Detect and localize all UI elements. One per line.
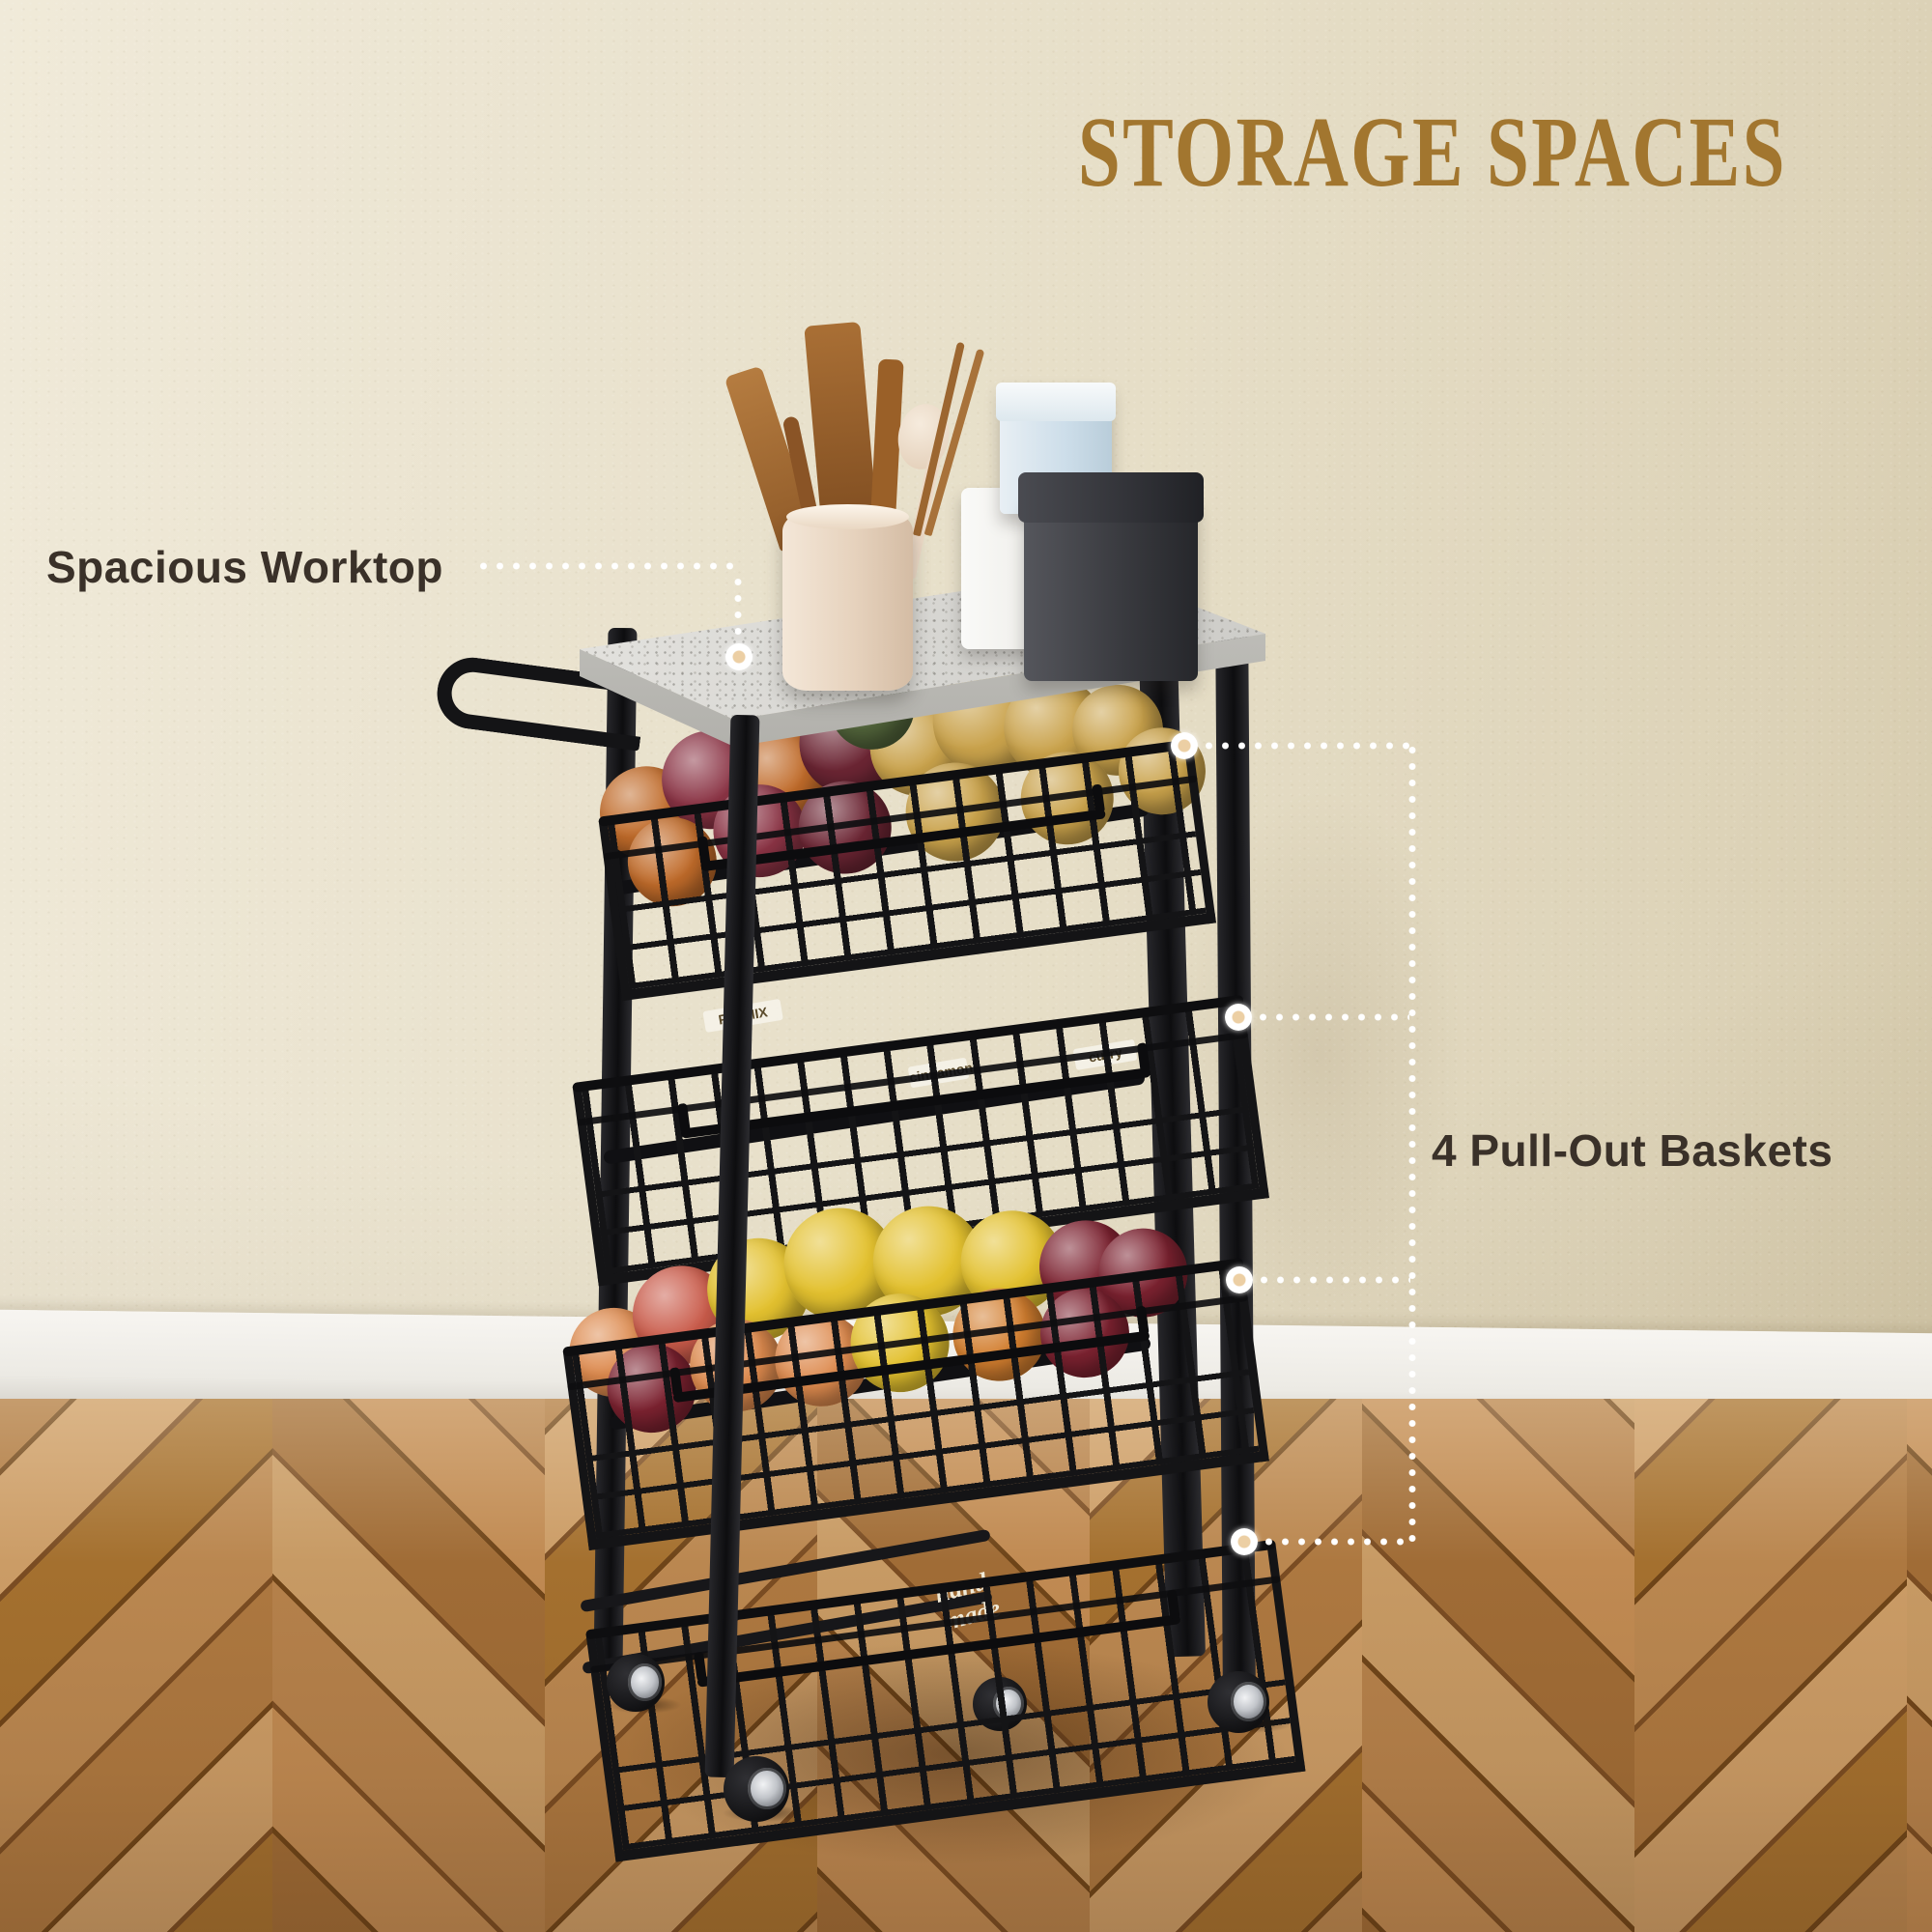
worktop-callout-dot xyxy=(725,643,753,670)
baskets-label: 4 Pull-Out Baskets xyxy=(1432,1124,1833,1177)
basket-3-callout-dot xyxy=(1226,1266,1253,1293)
worktop-callout-line xyxy=(734,574,742,647)
basket-2-callout-dot xyxy=(1225,1004,1252,1031)
caster-wheel-front-left xyxy=(724,1756,789,1822)
basket-1-callout-dot xyxy=(1171,732,1198,759)
product-showcase-image: STORAGE SPACES PIE MIXcinnamoncurry hand… xyxy=(0,0,1932,1932)
basket-4-callout-dot xyxy=(1231,1528,1258,1555)
utensil-crock xyxy=(782,512,913,691)
baskets-callout-line xyxy=(1201,742,1409,750)
baskets-callout-line xyxy=(1255,1013,1409,1021)
baskets-callout-line xyxy=(1408,742,1416,1546)
worktop-callout-line xyxy=(475,562,738,570)
baskets-callout-line xyxy=(1261,1538,1410,1546)
caster-wheel-front-right xyxy=(1207,1671,1269,1733)
canister-black xyxy=(1024,497,1198,681)
worktop-label: Spacious Worktop xyxy=(46,541,443,593)
baskets-callout-line xyxy=(1256,1276,1410,1284)
caster-wheel-back-left xyxy=(607,1654,665,1712)
